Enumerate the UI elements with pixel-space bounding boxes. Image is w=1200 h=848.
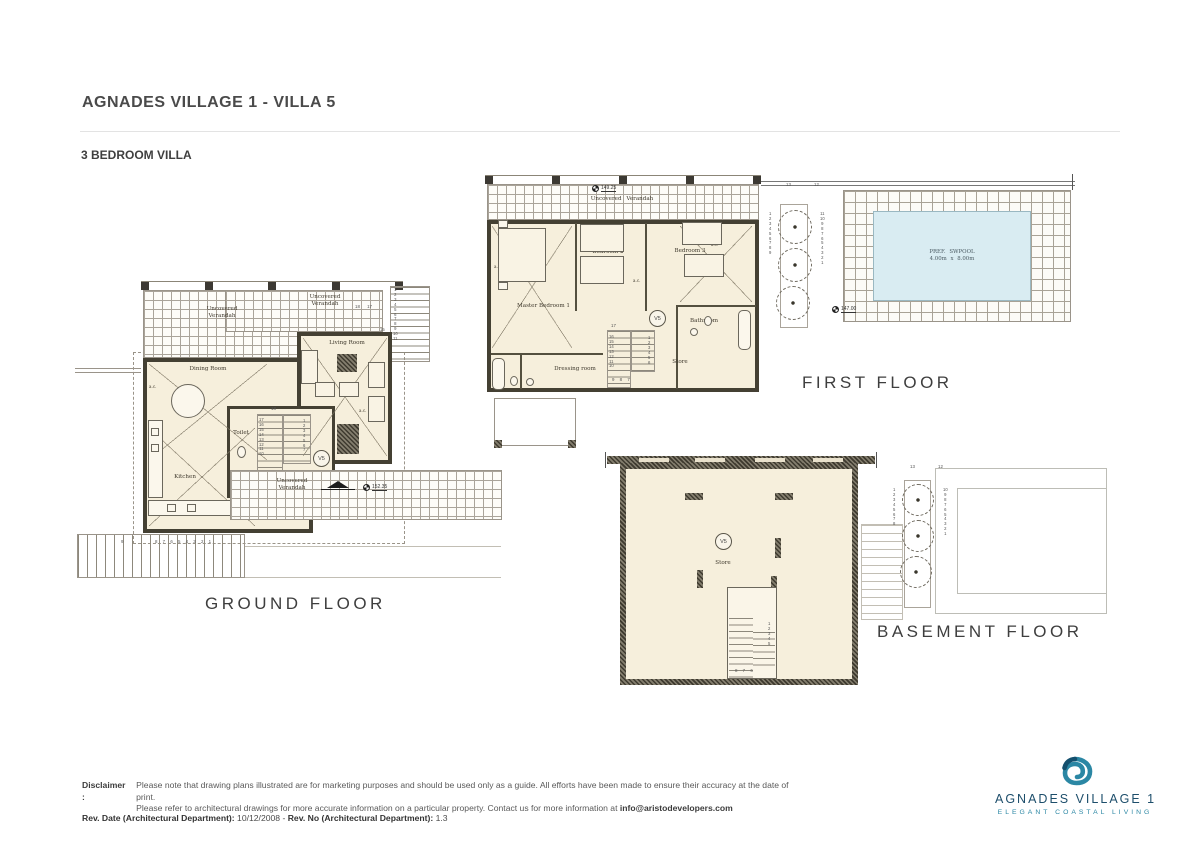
pool-label-2: 4.00m x 8.00m bbox=[930, 256, 975, 263]
ground-floor-plan: Uncovered Verandah Uncovered Verandah 1 … bbox=[75, 278, 455, 638]
basement-floor-title: BASEMENT FLOOR bbox=[877, 622, 1083, 642]
column-2 bbox=[775, 493, 793, 500]
disclaimer-text: Please note that drawing plans illustrat… bbox=[136, 780, 802, 815]
cabinet bbox=[337, 424, 359, 454]
logo-tagline: ELEGANT COASTAL LIVING bbox=[995, 809, 1155, 816]
kitchen-label: Kitchen bbox=[155, 474, 215, 481]
verandah-label-first: Uncovered Verandah bbox=[542, 196, 702, 203]
ac-label-left: a.c. bbox=[149, 384, 157, 389]
living-room-label: Living Room bbox=[307, 340, 387, 347]
first-stair-top: 17 bbox=[611, 323, 616, 328]
basement-ext-stair bbox=[861, 524, 903, 620]
level-icon bbox=[832, 306, 839, 313]
revision-line: Rev. Date (Architectural Department): 10… bbox=[82, 813, 448, 823]
first-floor-title: FIRST FLOOR bbox=[802, 373, 953, 393]
master-bedroom-label: Master Bedroom 1 bbox=[496, 303, 591, 310]
verandah-label-top-left: Uncovered Verandah bbox=[167, 306, 277, 319]
disclaimer-label: Disclaimer : bbox=[82, 780, 130, 815]
page-subtitle: 3 BEDROOM VILLA bbox=[81, 148, 192, 162]
basement-tick-left bbox=[605, 452, 606, 468]
pergola-post bbox=[205, 282, 213, 290]
garden-col-right: 11 10 9 8 7 6 5 4 3 2 1 bbox=[820, 212, 825, 266]
ground-stair-right-flight bbox=[283, 414, 311, 464]
pergola-post bbox=[485, 176, 493, 184]
bath-wc bbox=[704, 316, 712, 326]
kitchen-appliance bbox=[167, 504, 176, 512]
pergola-post bbox=[268, 282, 276, 290]
stair-bottom-numbers: 8 7 6 5 4 3 2 1 bbox=[155, 539, 211, 544]
window-gap-1 bbox=[639, 458, 669, 462]
pergola-post bbox=[141, 282, 149, 290]
first-stair-right-numbers: 1 2 3 4 5 6 bbox=[648, 336, 650, 365]
stair-pair-label: 18 17 bbox=[355, 304, 372, 309]
porch-outline bbox=[494, 398, 576, 446]
kitchen-appliance2 bbox=[187, 504, 196, 512]
tree-1 bbox=[778, 210, 812, 244]
garden-wall-line bbox=[75, 368, 141, 373]
armchair-1 bbox=[368, 362, 385, 388]
pergola-post bbox=[619, 176, 627, 184]
page-title: AGNADES VILLAGE 1 - VILLA 5 bbox=[82, 94, 336, 112]
contact-email: info@aristodevelopers.com bbox=[620, 803, 733, 813]
floor-plan-sheet: AGNADES VILLAGE 1 - VILLA 5 3 BEDROOM VI… bbox=[0, 0, 1200, 848]
pergola-post bbox=[686, 176, 694, 184]
ensuite-wc bbox=[510, 376, 518, 386]
seat-2 bbox=[339, 382, 359, 397]
dining-room-label: Dining Room bbox=[163, 366, 253, 373]
porch-post-left bbox=[494, 440, 502, 448]
basement-tree-3 bbox=[900, 556, 932, 588]
window-gap-2 bbox=[695, 458, 725, 462]
level-icon bbox=[363, 484, 370, 491]
toilet-wc bbox=[237, 446, 246, 458]
column-1 bbox=[685, 493, 703, 500]
wall-master-dressing bbox=[491, 353, 603, 355]
ensuite-sink bbox=[526, 378, 534, 386]
unit-badge-basement: V5 bbox=[715, 533, 732, 550]
kitchen-sink bbox=[151, 428, 159, 436]
tree-3 bbox=[776, 286, 810, 320]
basement-tree-2 bbox=[902, 520, 934, 552]
store-label-basement: Store bbox=[705, 560, 741, 567]
pool-outline-inner bbox=[957, 488, 1107, 594]
unit-badge-ground: V5 bbox=[313, 450, 330, 467]
ground-stair-right-numbers: 1 2 3 4 5 6 7 bbox=[303, 419, 305, 453]
path-guide-lines bbox=[245, 546, 501, 578]
boundary-end-tick bbox=[1072, 174, 1073, 190]
column-3 bbox=[775, 538, 781, 558]
dressing-room-label: Dressing room bbox=[540, 366, 610, 373]
first-floor-plan: Uncovered Verandah 149.25 Master Bedroom… bbox=[480, 170, 1100, 480]
wall-bath-top bbox=[676, 305, 756, 307]
brand-logo: AGNADES VILLAGE 1 ELEGANT COASTAL LIVING bbox=[995, 756, 1155, 816]
column-4 bbox=[697, 570, 703, 588]
first-stair-left-numbers: 16 15 14 13 12 11 10 bbox=[609, 335, 614, 369]
window-gap-4 bbox=[813, 458, 843, 462]
garden-13: 13 bbox=[786, 182, 791, 187]
porch-post-right bbox=[568, 440, 576, 448]
level-marker-verandah: 149.25 bbox=[592, 185, 616, 192]
store-label-first: Store bbox=[660, 359, 700, 366]
title-divider bbox=[80, 131, 1120, 132]
level-marker-pool: 147.00 bbox=[832, 306, 856, 313]
basement-13: 13 bbox=[910, 464, 915, 469]
basement-tick-right bbox=[876, 452, 877, 468]
entrance-arrow bbox=[327, 481, 349, 488]
exterior-stair-right-numbers: 1 2 3 4 5 6 7 8 9 10 11 bbox=[393, 288, 398, 342]
bath-sink bbox=[690, 328, 698, 336]
nightstand-1 bbox=[498, 220, 508, 228]
disclaimer: Disclaimer : Please note that drawing pl… bbox=[82, 780, 802, 815]
bed2-b bbox=[580, 256, 624, 284]
sofa-left bbox=[301, 350, 318, 384]
boundary-line bbox=[761, 181, 1075, 186]
dining-table bbox=[171, 384, 205, 418]
basement-stair-bottom: 8 7 6 bbox=[735, 668, 753, 673]
basement-floor-plan: V5 Store 1 2 3 4 5 8 7 6 13 12 1 2 3 4 5… bbox=[605, 450, 1115, 705]
basement-col-left: 1 2 3 4 5 6 7 8 bbox=[893, 488, 895, 527]
first-stair-bottom: 9 8 7 bbox=[612, 377, 630, 382]
tv-unit bbox=[337, 354, 357, 372]
stair-nine: 9 bbox=[121, 539, 123, 544]
ground-stair-top-number: 18 bbox=[271, 406, 276, 411]
ac-center: a.c. bbox=[633, 278, 641, 283]
ac-label-right: a.c. bbox=[359, 408, 367, 413]
level-marker-ground: 152.35 bbox=[363, 484, 387, 491]
armchair-2 bbox=[368, 396, 385, 422]
nightstand-2 bbox=[498, 282, 508, 290]
swimming-pool: PREF. SWPOOL 4.00m x 8.00m bbox=[873, 211, 1031, 301]
basement-stair-right bbox=[753, 632, 775, 666]
pergola-post bbox=[332, 282, 340, 290]
basement-tree-1 bbox=[902, 484, 934, 516]
shell-icon bbox=[1055, 756, 1095, 786]
bed3-b bbox=[684, 254, 724, 277]
bed3-a bbox=[682, 222, 722, 245]
pergola-post bbox=[753, 176, 761, 184]
basement-stair-numbers: 1 2 3 4 5 bbox=[768, 622, 770, 647]
garden-col-left: 1 2 3 4 5 6 7 8 9 bbox=[769, 212, 771, 256]
logo-name: AGNADES VILLAGE 1 bbox=[995, 792, 1155, 806]
entrance-arrow-base bbox=[321, 489, 355, 490]
unit-badge-first: V5 bbox=[649, 310, 666, 327]
level-icon bbox=[592, 185, 599, 192]
tree-2 bbox=[778, 248, 812, 282]
ensuite-tub bbox=[492, 358, 505, 390]
master-bed bbox=[498, 228, 546, 282]
bathtub bbox=[738, 310, 751, 350]
bed2-a bbox=[580, 224, 624, 252]
pool-label-1: PREF. SWPOOL bbox=[929, 249, 974, 256]
wall-bed2-bed3 bbox=[645, 223, 647, 311]
garden-12: 12 bbox=[814, 182, 819, 187]
toilet-label: Toilet bbox=[221, 430, 261, 437]
wall-master-bed2 bbox=[575, 223, 577, 311]
first-stair-right bbox=[631, 330, 655, 372]
ground-stair-left-numbers: 17 16 15 14 13 12 11 10 bbox=[259, 418, 264, 457]
kitchen-hob bbox=[151, 444, 159, 452]
ground-floor-title: GROUND FLOOR bbox=[205, 594, 386, 614]
pergola-post bbox=[552, 176, 560, 184]
seat-1 bbox=[315, 382, 335, 397]
wall-ensuite bbox=[520, 353, 522, 389]
window-gap-3 bbox=[755, 458, 785, 462]
